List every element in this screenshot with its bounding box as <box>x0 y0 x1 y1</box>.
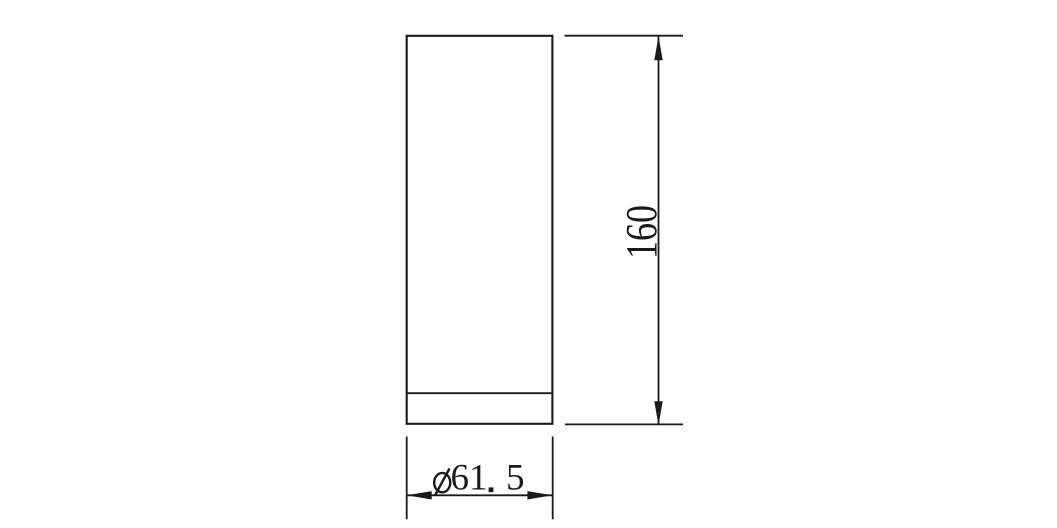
svg-text:160: 160 <box>617 205 666 259</box>
